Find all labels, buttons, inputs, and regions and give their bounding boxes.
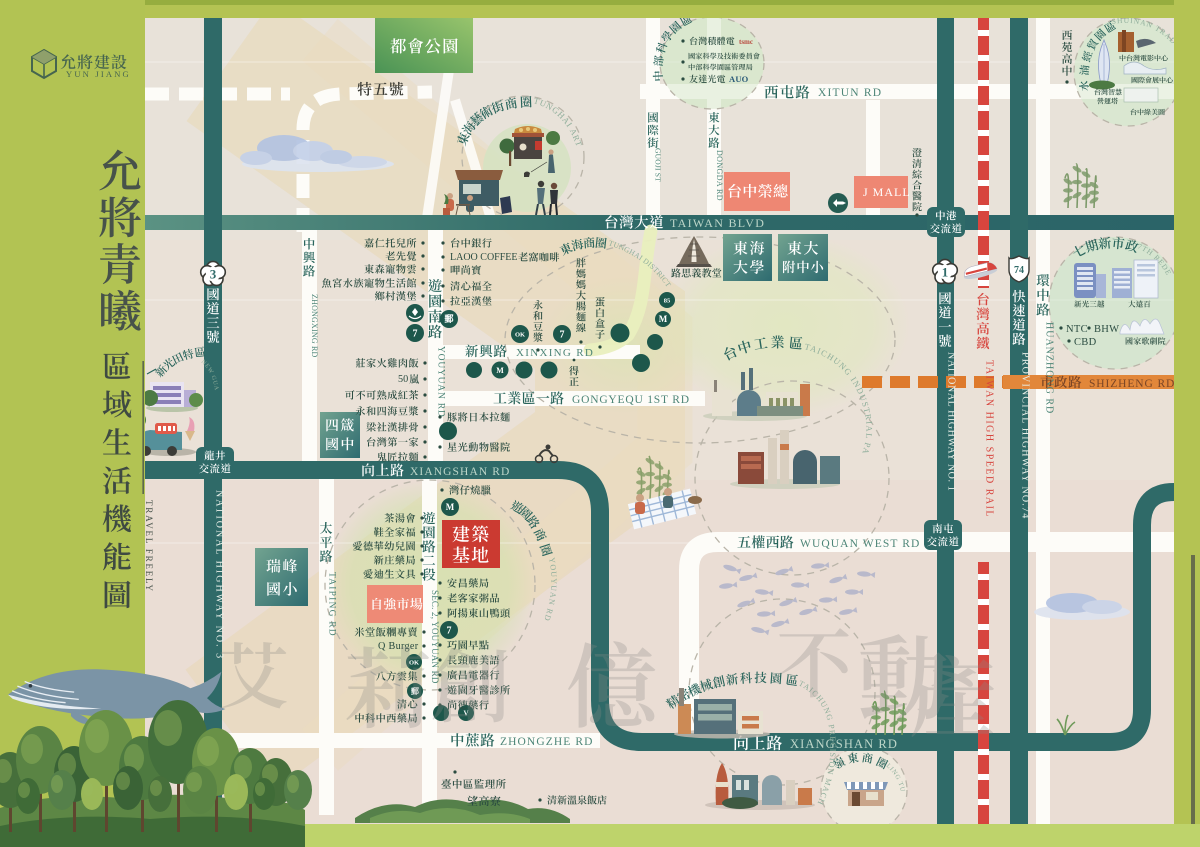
svg-text:XITUN RD: XITUN RD	[818, 87, 882, 99]
svg-text:NATIONAL HIGHWAY NO. 1: NATIONAL HIGHWAY NO. 1	[946, 352, 957, 491]
svg-text:74: 74	[1014, 265, 1024, 276]
svg-text:3: 3	[210, 267, 217, 282]
svg-text:GUOJI ST: GUOJI ST	[654, 148, 663, 182]
svg-text:DONGDA RD: DONGDA RD	[715, 150, 724, 201]
svg-text:NATIONAL HIGHWAY NO. 3: NATIONAL HIGHWAY NO. 3	[214, 490, 225, 660]
svg-text:GONGYEQU 1ST RD: GONGYEQU 1ST RD	[572, 394, 690, 406]
svg-text:XIANGSHAN RD: XIANGSHAN RD	[790, 737, 898, 751]
svg-text:OK: OK	[515, 331, 525, 338]
svg-text:85: 85	[664, 297, 671, 304]
svg-text:YUN JIANG: YUN JIANG	[66, 69, 131, 79]
svg-text:7: 7	[447, 626, 452, 637]
svg-text:tsmc: tsmc	[739, 38, 753, 46]
svg-text:AUO: AUO	[729, 74, 749, 84]
svg-text:YOUYUAN RD: YOUYUAN RD	[435, 346, 445, 418]
svg-text:Q Burger: Q Burger	[378, 641, 419, 652]
svg-text:M: M	[659, 314, 668, 324]
svg-text:ZHONGZHE RD: ZHONGZHE RD	[500, 736, 594, 748]
svg-text:50: 50	[398, 374, 408, 385]
svg-text:TAIWAN BLVD: TAIWAN BLVD	[670, 216, 765, 230]
svg-text:XIANGSHAN RD: XIANGSHAN RD	[410, 466, 510, 478]
svg-text:OK: OK	[409, 659, 419, 666]
svg-text:TAIPING RD: TAIPING RD	[326, 572, 336, 637]
svg-text:7: 7	[413, 329, 418, 340]
svg-text:1: 1	[942, 265, 949, 280]
svg-text:M: M	[446, 502, 455, 512]
svg-text:SHIZHENG RD: SHIZHENG RD	[1089, 378, 1175, 390]
svg-text:PROVINCIAL HIGHWAY NO.74: PROVINCIAL HIGHWAY NO.74	[1020, 352, 1031, 519]
svg-text:7: 7	[560, 330, 565, 341]
svg-text:M: M	[496, 366, 504, 375]
svg-text:TRAVEL FREELY: TRAVEL FREELY	[144, 500, 154, 593]
svg-text:J MALL: J MALL	[863, 185, 911, 199]
svg-text:BHW: BHW	[1094, 324, 1119, 335]
svg-text:ZHONGXING RD: ZHONGXING RD	[310, 294, 319, 358]
svg-text:WUQUAN WEST RD: WUQUAN WEST RD	[800, 538, 920, 550]
svg-text:XINXING RD: XINXING RD	[516, 347, 594, 359]
svg-text:HUANZHONG RD: HUANZHONG RD	[1044, 322, 1055, 414]
svg-text:NTC: NTC	[1066, 324, 1088, 335]
svg-text:LAOO COFFEE: LAOO COFFEE	[450, 252, 518, 263]
svg-text:CBD: CBD	[1074, 337, 1097, 348]
svg-text:郵: 郵	[444, 313, 453, 324]
svg-text:TAIWAN HIGH SPEED RAIL: TAIWAN HIGH SPEED RAIL	[984, 360, 995, 518]
